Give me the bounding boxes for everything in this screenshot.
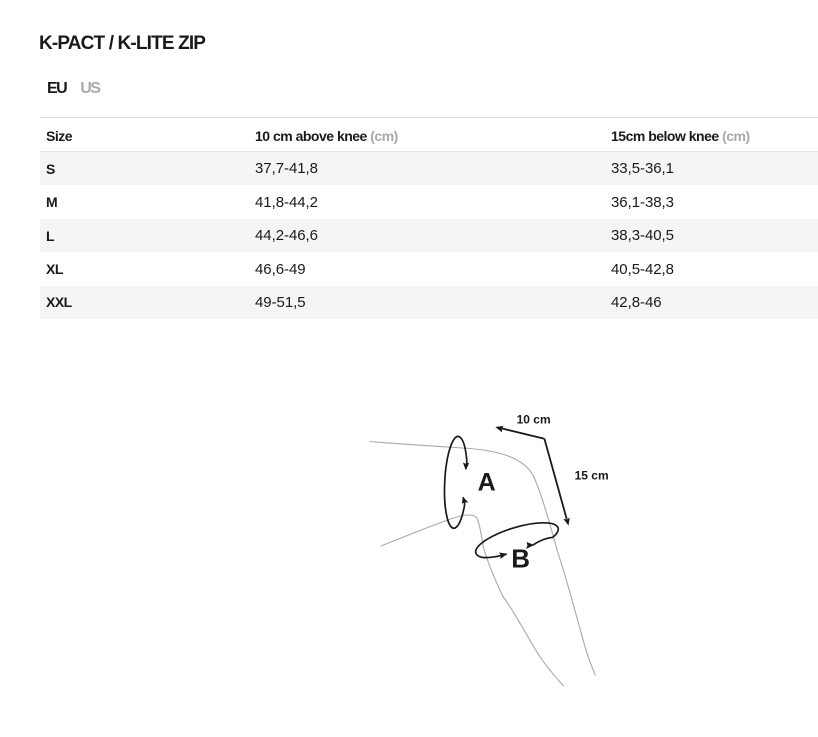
svg-text:A: A bbox=[478, 469, 496, 497]
svg-text:10 cm: 10 cm bbox=[517, 412, 551, 426]
svg-text:15 cm: 15 cm bbox=[575, 468, 609, 482]
svg-text:B: B bbox=[511, 544, 530, 574]
